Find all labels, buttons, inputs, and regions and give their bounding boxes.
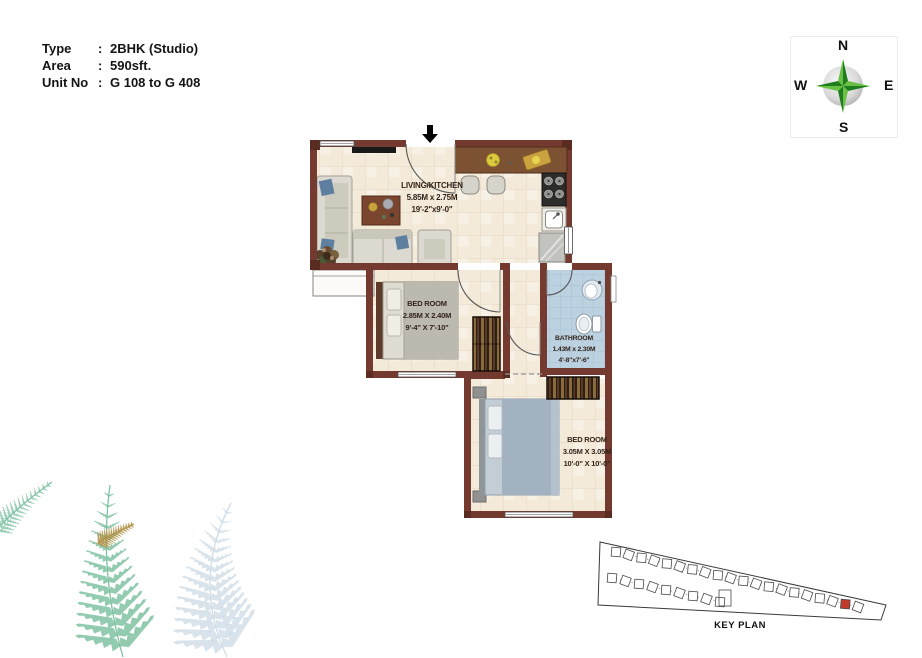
compass-north-label: N [838,37,848,53]
room-dim-metric: 3.05M X 3.05M [551,446,623,458]
bedroom1-label: BED ROOM 2.85M X 2.40M 9'-4" X 7'-10" [388,298,466,334]
compass-west-label: W [794,77,807,93]
tv-unit [352,146,396,153]
compass-star-icon [815,58,871,114]
balcony-bay [313,270,374,296]
living-kitchen-label: LIVING/KITCHEN 5.85M x 2.75M 19'-2"x9'-0… [376,180,488,216]
room-dim-imperial: 10'-0" X 10'-0" [551,458,623,470]
compass-rose: N S W E [790,36,898,138]
info-row-unitno: Unit No : G 108 to G 408 [42,74,200,91]
room-name: BED ROOM [551,434,623,446]
info-label: Unit No [42,74,98,91]
bedroom2-label: BED ROOM 3.05M X 3.05M 10'-0" X 10'-0" [551,434,623,470]
armchair [418,230,451,265]
wardrobe-bedroom1 [473,317,500,371]
room-dim-imperial: 4'-8"x7'-6" [541,355,607,366]
bed2 [473,387,559,502]
info-separator: : [98,57,110,74]
info-row-area: Area : 590sft. [42,57,200,74]
info-separator: : [98,40,110,57]
two-seater-sofa [353,230,412,265]
info-value: 590sft. [110,57,151,74]
info-value: G 108 to G 408 [110,74,200,91]
info-value: 2BHK (Studio) [110,40,198,57]
room-name: BATHROOM [541,333,607,344]
room-dim-metric: 5.85M x 2.75M [376,192,488,204]
room-dim-imperial: 9'-4" X 7'-10" [388,322,466,334]
wash-basin [582,280,602,300]
page-root: Type : 2BHK (Studio) Area : 590sft. Unit… [0,0,922,658]
room-dim-metric: 1.43M x 2.30M [541,344,607,355]
entry-arrow-icon [422,125,438,143]
refrigerator [539,233,565,262]
compass-south-label: S [839,119,848,135]
stove [542,173,566,206]
info-label: Type [42,40,98,57]
info-row-type: Type : 2BHK (Studio) [42,40,200,57]
info-separator: : [98,74,110,91]
toilet [576,314,601,334]
bathroom-shelf [611,276,616,302]
kitchen-sink [542,208,566,231]
wardrobe-bedroom2 [547,377,599,399]
room-dim-imperial: 19'-2"x9'-0" [376,204,488,216]
floor-plan: LIVING/KITCHEN 5.85M x 2.75M 19'-2"x9'-0… [296,120,630,528]
unit-info-panel: Type : 2BHK (Studio) Area : 590sft. Unit… [42,40,200,91]
kitchen-counter [455,147,567,173]
key-plan-label: KEY PLAN [675,620,805,631]
room-dim-metric: 2.85M X 2.40M [388,310,466,322]
fern-decoration [0,460,260,658]
bathroom-label: BATHROOM 1.43M x 2.30M 4'-8"x7'-6" [541,333,607,366]
info-label: Area [42,57,98,74]
room-name: BED ROOM [388,298,466,310]
room-name: LIVING/KITCHEN [376,180,488,192]
compass-east-label: E [884,77,893,93]
